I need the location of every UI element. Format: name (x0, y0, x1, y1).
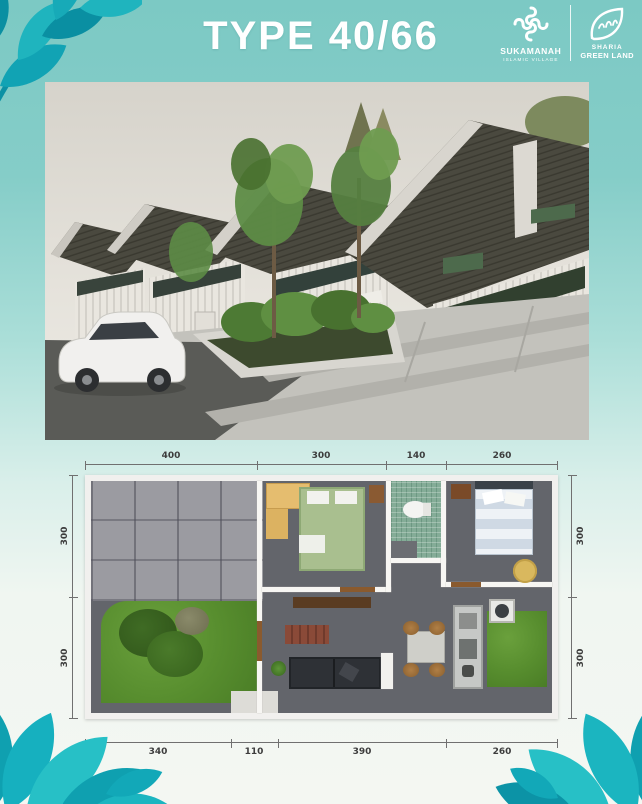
sofa-cushion (339, 662, 360, 682)
washing-machine (489, 599, 515, 623)
dim-line-left: 300 300 (72, 475, 73, 719)
pillow (504, 491, 526, 506)
front-door (257, 621, 262, 661)
sukamanah-knot-icon (510, 4, 552, 44)
dim-left-1: 300 (60, 527, 70, 546)
sharia-line1: SHARIA (592, 44, 623, 51)
laundry-basket (513, 559, 537, 583)
dim-line-bottom: 340 110 390 260 (85, 742, 558, 743)
wall (391, 558, 446, 563)
wall (257, 661, 262, 713)
dining-table (407, 631, 445, 663)
toilet-tank (423, 503, 431, 516)
sharia-line2: GREEN LAND (580, 51, 634, 60)
sukamanah-tagline: ISLAMIC VILLAGE (503, 57, 558, 62)
pillow (307, 491, 329, 504)
sharia-green-land-leaf-icon (588, 6, 626, 42)
pillow (482, 489, 504, 505)
carport (91, 481, 263, 601)
dim-top-3: 140 (407, 451, 426, 461)
dim-bottom-1: 340 (149, 747, 168, 757)
bedroom2-door (451, 582, 481, 587)
sukamanah-logo: SUKAMANAH ISLAMIC VILLAGE (500, 4, 561, 62)
washer-door (495, 604, 509, 618)
entry-terrace (231, 691, 278, 713)
tv-console (293, 597, 371, 608)
blanket-fold (299, 535, 325, 553)
bath-floor-drain (391, 541, 417, 558)
front-garden (101, 601, 257, 703)
pillow (335, 491, 357, 504)
dim-bottom-3: 390 (353, 747, 372, 757)
dim-top-4: 260 (493, 451, 512, 461)
wardrobe-side (266, 509, 288, 539)
bed-2 (475, 489, 533, 555)
dim-left-2: 300 (60, 649, 70, 668)
sofa (289, 657, 381, 689)
dim-bottom-4: 260 (493, 747, 512, 757)
dim-right-2: 300 (576, 649, 586, 668)
dining-chair (429, 621, 445, 635)
kitchen-counter (453, 605, 483, 689)
flyer-page: TYPE 40/66 SUKAMANAH ISLAMIC VILLAGE SHA… (0, 0, 642, 804)
nightstand-2 (451, 484, 471, 499)
page-title: TYPE 40/66 (203, 14, 439, 59)
dim-line-right: 300 300 (571, 475, 572, 719)
house-exterior-scene (45, 82, 589, 440)
wall (262, 587, 340, 592)
nightstand (369, 485, 384, 503)
dining-chair (403, 663, 419, 677)
house-exterior-render (45, 82, 589, 440)
floor-plan-render: 400 300 140 260 340 110 390 260 300 300 (60, 442, 585, 772)
kitchen-sink (459, 613, 477, 629)
dim-top-1: 400 (162, 451, 181, 461)
master-bed (299, 487, 365, 571)
garden-bush (147, 631, 203, 677)
coffee-table (285, 625, 329, 644)
bedroom1-door (340, 587, 375, 592)
sofa-seam (333, 659, 335, 687)
dining-chair (403, 621, 419, 635)
sukamanah-name: SUKAMANAH (500, 46, 561, 56)
brand-logos: SUKAMANAH ISLAMIC VILLAGE SHARIA GREEN L… (500, 4, 640, 62)
dim-line-top: 400 300 140 260 (85, 464, 558, 465)
wall (257, 481, 262, 621)
logo-divider (570, 5, 571, 61)
garden-rock (175, 607, 209, 635)
dim-bottom-2: 110 (245, 747, 264, 757)
sharia-green-land-logo: SHARIA GREEN LAND (580, 6, 634, 60)
houseplant (271, 661, 286, 676)
wall (441, 481, 446, 587)
dim-top-2: 300 (312, 451, 331, 461)
dining-chair (429, 663, 445, 677)
partition-wall (381, 653, 393, 689)
floor-plan-body (85, 475, 558, 719)
dim-right-1: 300 (576, 527, 586, 546)
stove-burner (462, 665, 474, 677)
